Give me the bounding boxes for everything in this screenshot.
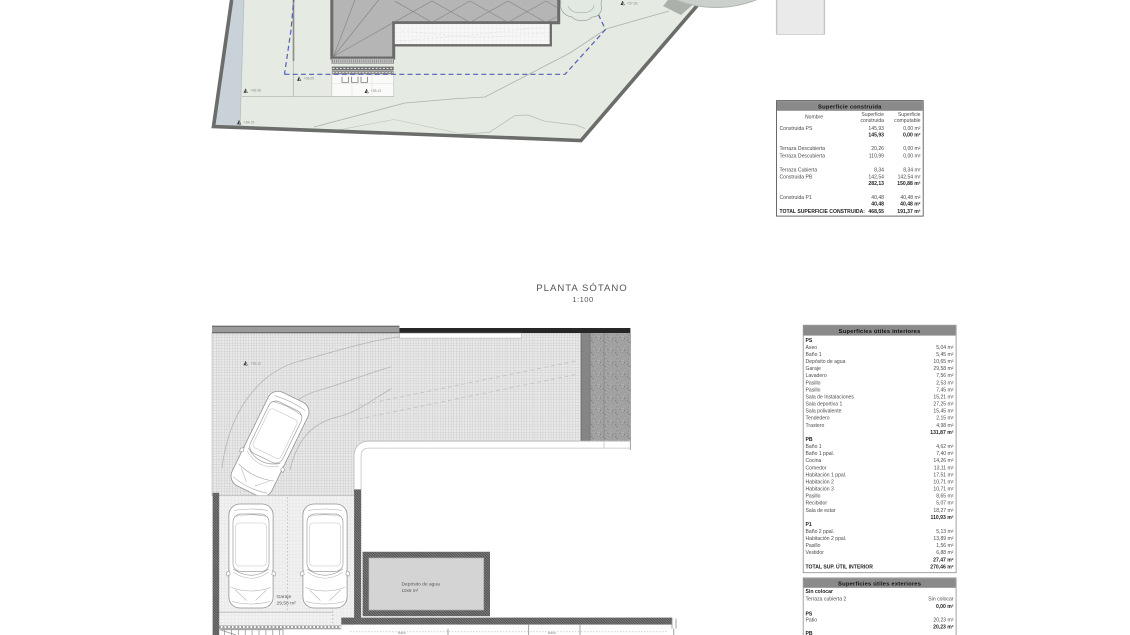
svg-text:Comedor: Comedor — [806, 465, 827, 471]
svg-text:+56,05: +56,05 — [304, 77, 315, 81]
svg-text:Pasillo: Pasillo — [806, 543, 821, 549]
svg-text:Superficie construida: Superficie construida — [818, 104, 882, 110]
svg-text:15,45 m²: 15,45 m² — [933, 409, 953, 415]
svg-text:40,48: 40,48 — [871, 202, 884, 208]
svg-text:0,00 m²: 0,00 m² — [903, 153, 921, 159]
svg-text:Sin colocar: Sin colocar — [928, 597, 954, 603]
svg-text:Baño 1: Baño 1 — [806, 444, 822, 450]
svg-text:PB: PB — [806, 631, 813, 635]
svg-text:142,54 m²: 142,54 m² — [898, 174, 921, 180]
svg-text:1:100: 1:100 — [572, 295, 594, 304]
svg-text:0,00 m²: 0,00 m² — [903, 146, 921, 152]
svg-text:110,99: 110,99 — [869, 153, 884, 159]
svg-text:7,45 m²: 7,45 m² — [936, 387, 954, 393]
svg-text:Superficie: Superficie — [898, 112, 921, 118]
svg-text:Superficies útiles exteriores: Superficies útiles exteriores — [838, 582, 921, 588]
svg-text:Baño: Baño — [548, 631, 556, 635]
svg-text:0,00 m²: 0,00 m² — [903, 126, 921, 132]
svg-text:Sin colocar: Sin colocar — [806, 589, 833, 595]
svg-text:5,45 m²: 5,45 m² — [936, 352, 954, 358]
svg-text:20,26: 20,26 — [871, 146, 884, 152]
svg-text:Superficie: Superficie — [861, 112, 884, 118]
svg-text:8,65 m²: 8,65 m² — [936, 494, 954, 500]
svg-text:5,04 m²: 5,04 m² — [936, 345, 954, 351]
svg-text:Baño 2 ppal.: Baño 2 ppal. — [806, 529, 835, 535]
svg-text:20,23 m²: 20,23 m² — [933, 617, 953, 623]
svg-text:Habitación 2 ppal.: Habitación 2 ppal. — [806, 536, 847, 542]
svg-text:145,93: 145,93 — [868, 126, 884, 132]
svg-text:282,13: 282,13 — [868, 181, 884, 187]
svg-text:Cocina: Cocina — [806, 458, 822, 464]
svg-text:150,88 m²: 150,88 m² — [897, 181, 921, 187]
svg-text:+57,30: +57,30 — [627, 1, 638, 5]
svg-text:6,88 m²: 6,88 m² — [936, 550, 954, 556]
svg-text:40,48 m²: 40,48 m² — [900, 202, 921, 208]
svg-text:13,11 m²: 13,11 m² — [934, 465, 954, 471]
svg-text:Depósito de agua: Depósito de agua — [806, 359, 846, 365]
svg-text:8,34: 8,34 — [874, 168, 884, 174]
svg-text:2,53 m²: 2,53 m² — [936, 380, 954, 386]
svg-text:Construida PS: Construida PS — [780, 126, 813, 132]
svg-text:Trastero: Trastero — [806, 423, 825, 429]
svg-text:Pasillo: Pasillo — [806, 494, 821, 500]
svg-text:4,98 m²: 4,98 m² — [936, 423, 954, 429]
svg-text:10,71 m²: 10,71 m² — [933, 487, 953, 493]
svg-text:5,13 m²: 5,13 m² — [936, 529, 954, 535]
svg-text:14,26 m²: 14,26 m² — [933, 458, 953, 464]
svg-text:10,71 m²: 10,71 m² — [933, 479, 953, 485]
svg-text:+54,75: +54,75 — [244, 120, 255, 124]
svg-text:27,25 m²: 27,25 m² — [933, 402, 953, 408]
svg-text:270,46 m²: 270,46 m² — [930, 564, 954, 570]
svg-text:5,07 m²: 5,07 m² — [936, 501, 954, 507]
svg-text:29,58 m²: 29,58 m² — [277, 601, 297, 607]
svg-text:Habitación 3: Habitación 3 — [806, 487, 834, 493]
svg-text:10,65 m²: 10,65 m² — [933, 359, 953, 365]
svg-text:+55,12: +55,12 — [371, 89, 382, 93]
svg-text:Pasillo: Pasillo — [806, 387, 821, 393]
svg-text:18,27 m²: 18,27 m² — [933, 508, 953, 514]
svg-text:Terraza Descubierta: Terraza Descubierta — [780, 153, 826, 159]
svg-text:Aseo: Aseo — [806, 345, 818, 351]
svg-text:27,47 m²: 27,47 m² — [933, 557, 954, 563]
svg-text:PLANTA SÓTANO: PLANTA SÓTANO — [536, 283, 628, 294]
svg-text:1,56 m²: 1,56 m² — [936, 543, 954, 549]
svg-text:Terraza Descubierta: Terraza Descubierta — [780, 146, 826, 152]
svg-text:Sala de estar: Sala de estar — [806, 508, 836, 514]
svg-text:Baño: Baño — [398, 631, 406, 635]
svg-text:4,62 m²: 4,62 m² — [936, 444, 954, 450]
svg-text:Lavadero: Lavadero — [806, 373, 827, 379]
svg-text:TOTAL SUP. ÚTIL INTERIOR: TOTAL SUP. ÚTIL INTERIOR — [806, 563, 874, 570]
svg-text:7,56 m²: 7,56 m² — [936, 373, 954, 379]
svg-text:10x5 m²: 10x5 m² — [402, 588, 419, 593]
svg-text:0,00 m²: 0,00 m² — [903, 133, 921, 139]
svg-text:20,23 m²: 20,23 m² — [933, 625, 954, 631]
svg-text:142,54: 142,54 — [868, 174, 884, 180]
svg-text:Superficies útiles interiores: Superficies útiles interiores — [839, 329, 921, 335]
svg-text:Terraza cubierta 2: Terraza cubierta 2 — [806, 597, 847, 603]
svg-text:Terraza Cubierta: Terraza Cubierta — [780, 168, 818, 174]
svg-text:Garaje: Garaje — [277, 594, 292, 600]
svg-text:Habitación 1 ppal.: Habitación 1 ppal. — [806, 472, 847, 478]
svg-text:145,93: 145,93 — [868, 133, 884, 139]
svg-text:40,48: 40,48 — [871, 195, 884, 201]
svg-text:17,51 m²: 17,51 m² — [933, 472, 953, 478]
svg-text:Sala de Instalaciones: Sala de Instalaciones — [806, 395, 855, 401]
svg-text:Depósito de agua: Depósito de agua — [402, 581, 441, 587]
svg-text:P1: P1 — [806, 522, 812, 528]
svg-text:computable: computable — [894, 118, 921, 124]
svg-text:Sala polivalente: Sala polivalente — [806, 409, 842, 415]
svg-text:468,55: 468,55 — [868, 209, 884, 215]
svg-text:40,48 m²: 40,48 m² — [900, 195, 920, 201]
svg-text:Patio: Patio — [806, 617, 818, 623]
svg-text:PB: PB — [806, 437, 813, 443]
svg-text:Vestidor: Vestidor — [806, 550, 825, 556]
svg-text:Pasillo: Pasillo — [806, 380, 821, 386]
svg-text:Construida PB: Construida PB — [780, 174, 813, 180]
svg-text:Recibidor: Recibidor — [806, 501, 828, 507]
svg-text:2,15 m²: 2,15 m² — [936, 416, 954, 422]
svg-text:110,93 m²: 110,93 m² — [931, 515, 954, 521]
svg-text:Baño 1: Baño 1 — [806, 352, 822, 358]
svg-text:8,34 m²: 8,34 m² — [903, 168, 921, 174]
svg-text:Tendedero: Tendedero — [806, 416, 830, 422]
svg-text:PS: PS — [806, 338, 813, 344]
svg-text:Construida P1: Construida P1 — [780, 195, 812, 201]
svg-text:Sala deportiva 1: Sala deportiva 1 — [806, 402, 843, 408]
svg-text:15,21 m²: 15,21 m² — [933, 395, 953, 401]
svg-text:construida: construida — [860, 118, 884, 124]
svg-text:131,87 m²: 131,87 m² — [930, 430, 954, 436]
svg-text:Nombre: Nombre — [805, 115, 823, 121]
svg-text:29,58 m²: 29,58 m² — [933, 366, 953, 372]
svg-text:Baño 1 ppal.: Baño 1 ppal. — [806, 451, 835, 457]
svg-text:13,89 m²: 13,89 m² — [933, 536, 953, 542]
svg-text:Habitación 2: Habitación 2 — [806, 479, 834, 485]
svg-text:Garaje: Garaje — [806, 366, 821, 372]
svg-text:+52,12: +52,12 — [251, 361, 262, 365]
svg-text:TOTAL SUPERFICIE CONSTRUIDA:: TOTAL SUPERFICIE CONSTRUIDA: — [780, 209, 866, 215]
svg-text:+56,08: +56,08 — [251, 89, 262, 93]
svg-text:0,00 m²: 0,00 m² — [936, 604, 954, 610]
svg-text:191,37 m²: 191,37 m² — [897, 209, 921, 215]
svg-text:7,40 m²: 7,40 m² — [936, 451, 954, 457]
